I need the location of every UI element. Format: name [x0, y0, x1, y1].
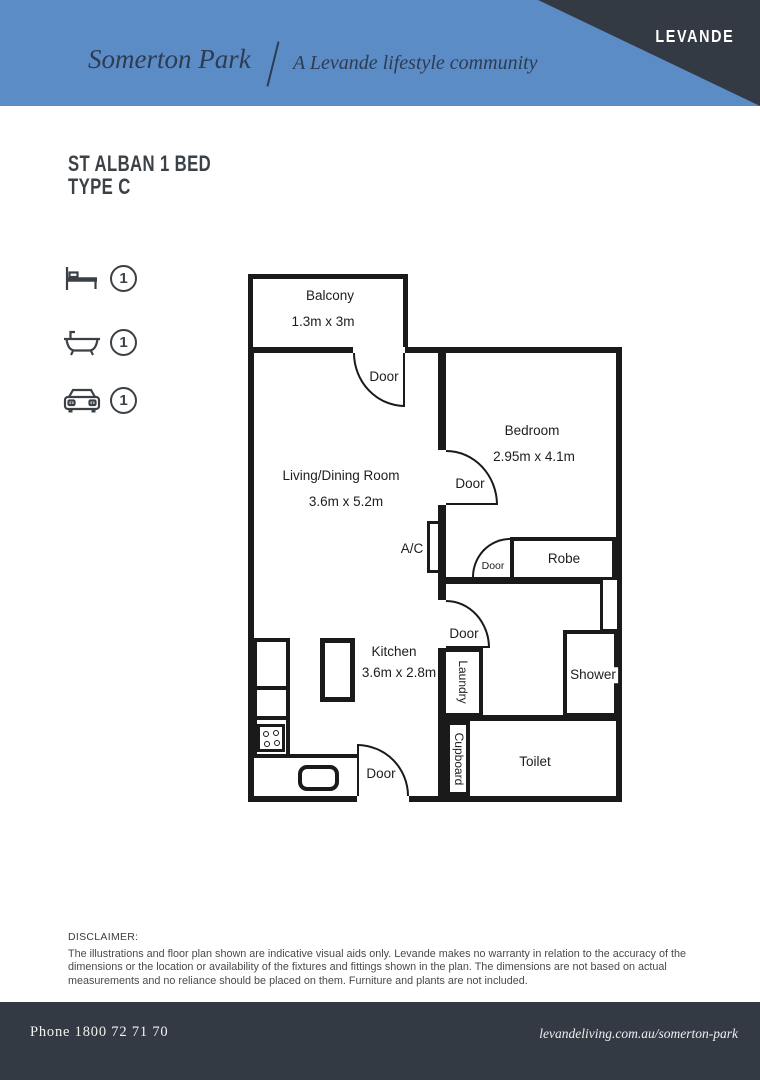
balcony-dims: 1.3m x 3m: [289, 314, 356, 330]
living-label: Living/Dining Room: [280, 468, 401, 484]
page-title-line1: ST ALBAN 1 BED: [68, 153, 211, 176]
disclaimer-heading: DISCLAIMER:: [68, 931, 716, 943]
bath-count: 1: [110, 329, 137, 356]
feature-car: 1: [62, 384, 137, 416]
ac-label: A/C: [399, 541, 426, 557]
footer-website: levandeliving.com.au/somerton-park: [539, 1026, 738, 1042]
ac-unit: [427, 521, 441, 573]
floorplan: Balcony 1.3m x 3m Door Living/Dining Roo…: [248, 274, 624, 804]
community-name: Somerton Park: [88, 44, 251, 75]
car-icon: [62, 385, 102, 415]
disclaimer-body: The illustrations and floor plan shown a…: [68, 948, 716, 988]
wall-divider-upper: [438, 353, 446, 450]
counter-divider-1: [253, 686, 290, 690]
bench-edge: [286, 754, 358, 758]
laundry-label: Laundry: [455, 658, 469, 705]
kitchen-island: [320, 638, 355, 702]
duct-shaft: [600, 577, 620, 632]
footer-bar: Phone 1800 72 71 70 levandeliving.com.au…: [0, 1002, 760, 1080]
entry-door-label: Door: [364, 766, 397, 782]
kitchen-sink: [298, 765, 339, 791]
kitchen-label: Kitchen: [369, 644, 418, 660]
brand-logo: LEVANDE: [655, 26, 734, 47]
bedroom-dims: 2.95m x 4.1m: [491, 449, 577, 465]
burner-icon: [273, 730, 279, 736]
robe-door-label: Door: [481, 560, 506, 572]
bed-icon: [62, 263, 102, 293]
living-dims: 3.6m x 5.2m: [307, 494, 385, 510]
shower-label: Shower: [568, 667, 618, 683]
flyer-page: Somerton Park A Levande lifestyle commun…: [0, 0, 760, 1080]
bath-icon: [62, 327, 102, 357]
burner-icon: [274, 740, 280, 746]
toilet-label: Toilet: [517, 754, 553, 770]
balcony-label: Balcony: [304, 288, 356, 304]
counter-divider-2: [253, 716, 290, 720]
car-count: 1: [110, 387, 137, 414]
cupboard-label: Cupboard: [451, 731, 465, 788]
cooktop: [257, 724, 285, 752]
balcony-door-label: Door: [367, 369, 400, 385]
robe-label: Robe: [546, 551, 582, 567]
feature-bath: 1: [62, 326, 137, 358]
bed-count: 1: [110, 265, 137, 292]
burner-icon: [263, 731, 269, 737]
disclaimer: DISCLAIMER: The illustrations and floor …: [68, 931, 716, 988]
feature-bed: 1: [62, 262, 137, 294]
bathroom-door-label: Door: [447, 626, 480, 642]
burner-icon: [264, 741, 270, 747]
page-title-line2: TYPE C: [68, 176, 211, 199]
kitchen-dims: 3.6m x 2.8m: [360, 665, 438, 681]
bedroom-label: Bedroom: [503, 423, 562, 439]
page-title: ST ALBAN 1 BED TYPE C: [68, 153, 211, 198]
entry-door-opening: [357, 796, 409, 802]
bedroom-door-label: Door: [453, 476, 486, 492]
footer-phone: Phone 1800 72 71 70: [30, 1024, 168, 1041]
tagline: A Levande lifestyle community: [293, 52, 538, 75]
